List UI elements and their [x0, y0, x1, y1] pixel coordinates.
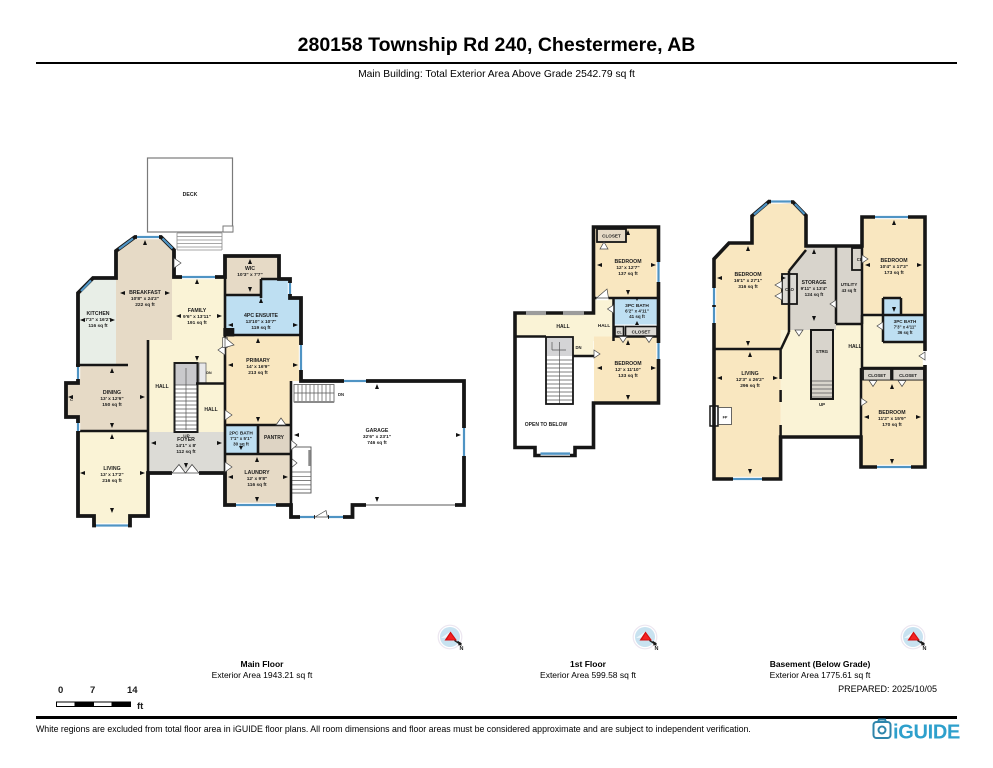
svg-text:6'2" x 4'11": 6'2" x 4'11"	[625, 309, 649, 314]
svg-text:PANTRY: PANTRY	[264, 435, 285, 441]
svg-text:11'2" x 15'9": 11'2" x 15'9"	[878, 416, 906, 422]
svg-text:296 sq ft: 296 sq ft	[740, 383, 760, 389]
svg-text:N: N	[923, 646, 927, 652]
svg-text:9'6" x 13'11": 9'6" x 13'11"	[183, 314, 211, 320]
svg-text:LIVING: LIVING	[103, 466, 120, 472]
svg-text:DN: DN	[338, 392, 344, 397]
svg-text:GARAGE: GARAGE	[366, 428, 389, 434]
svg-text:12' x 9'8": 12' x 9'8"	[247, 476, 268, 482]
svg-text:BEDROOM: BEDROOM	[614, 361, 641, 367]
svg-text:12' x 11'10": 12' x 11'10"	[615, 367, 641, 373]
svg-text:12' x 12'7": 12' x 12'7"	[616, 265, 639, 271]
svg-text:CLOSET: CLOSET	[899, 373, 917, 378]
svg-text:30 sq ft: 30 sq ft	[233, 442, 249, 447]
svg-text:CLOSET: CLOSET	[868, 373, 886, 378]
svg-text:HALL: HALL	[848, 344, 861, 350]
svg-text:FAMILY: FAMILY	[188, 308, 207, 314]
svg-text:124 sq ft: 124 sq ft	[805, 292, 824, 297]
svg-text:BEDROOM: BEDROOM	[878, 410, 905, 416]
svg-text:14: 14	[127, 685, 138, 696]
svg-text:14' x 16'9": 14' x 16'9"	[246, 364, 269, 370]
svg-text:iGUIDE: iGUIDE	[893, 722, 960, 744]
svg-text:316 sq ft: 316 sq ft	[738, 284, 758, 290]
svg-text:112 sq ft: 112 sq ft	[176, 449, 196, 455]
svg-text:BEDROOM: BEDROOM	[880, 258, 907, 264]
svg-text:43 sq ft: 43 sq ft	[842, 288, 857, 293]
svg-text:32'6" x 23'1": 32'6" x 23'1"	[363, 434, 391, 440]
svg-text:DN: DN	[206, 371, 212, 375]
svg-text:216 sq ft: 216 sq ft	[102, 478, 122, 484]
svg-text:HALL: HALL	[598, 323, 610, 328]
svg-text:N: N	[460, 646, 464, 652]
svg-text:LIVING: LIVING	[741, 371, 758, 377]
svg-text:116 sq ft: 116 sq ft	[88, 323, 108, 329]
svg-text:DINING: DINING	[103, 390, 121, 396]
svg-text:170 sq ft: 170 sq ft	[882, 422, 902, 428]
svg-text:HALL: HALL	[155, 384, 168, 390]
svg-text:16'1" x 27'1": 16'1" x 27'1"	[734, 278, 762, 284]
svg-text:213 sq ft: 213 sq ft	[248, 370, 268, 376]
svg-text:KITCHEN: KITCHEN	[86, 311, 109, 317]
svg-text:12'3" x 26'2": 12'3" x 26'2"	[736, 377, 764, 383]
svg-text:CLOSET: CLOSET	[602, 234, 621, 239]
svg-text:HALL: HALL	[204, 407, 217, 413]
svg-text:BEDROOM: BEDROOM	[734, 272, 761, 278]
svg-text:7'3" x 4'11": 7'3" x 4'11"	[894, 325, 917, 330]
svg-text:7: 7	[90, 685, 95, 696]
svg-text:7'1" x 5'1": 7'1" x 5'1"	[230, 436, 251, 441]
svg-text:BEDROOM: BEDROOM	[614, 259, 641, 265]
svg-text:41 sq ft: 41 sq ft	[629, 314, 645, 319]
svg-text:116 sq ft: 116 sq ft	[247, 482, 267, 488]
svg-text:BREAKFAST: BREAKFAST	[129, 290, 162, 296]
svg-text:746 sq ft: 746 sq ft	[367, 440, 387, 446]
svg-text:10'8" x 24'2": 10'8" x 24'2"	[131, 296, 159, 302]
svg-text:150 sq ft: 150 sq ft	[102, 402, 122, 408]
svg-text:7'3" x 16'2": 7'3" x 16'2"	[85, 317, 111, 323]
svg-text:133 sq ft: 133 sq ft	[618, 373, 638, 379]
svg-text:10'3" x 7'7": 10'3" x 7'7"	[237, 272, 263, 278]
svg-text:137 sq ft: 137 sq ft	[618, 271, 638, 277]
svg-text:36 sq ft: 36 sq ft	[897, 330, 913, 335]
svg-text:4PC ENSUITE: 4PC ENSUITE	[244, 313, 279, 319]
svg-text:UP: UP	[183, 434, 189, 439]
svg-text:WIC: WIC	[245, 266, 255, 272]
svg-text:CLOSET: CLOSET	[632, 330, 651, 335]
svg-text:DECK: DECK	[183, 192, 198, 198]
svg-text:3PC BATH: 3PC BATH	[894, 319, 917, 324]
svg-text:N: N	[655, 646, 659, 652]
svg-text:HALL: HALL	[556, 324, 569, 330]
svg-text:LAUNDRY: LAUNDRY	[244, 470, 270, 476]
svg-text:9'11" x 13'4": 9'11" x 13'4"	[801, 286, 828, 291]
svg-text:PRIMARY: PRIMARY	[246, 358, 270, 364]
svg-text:CL: CL	[617, 331, 623, 335]
svg-text:ft: ft	[137, 701, 144, 712]
svg-text:191 sq ft: 191 sq ft	[187, 320, 207, 326]
svg-text:FP: FP	[723, 416, 728, 420]
svg-text:0: 0	[58, 685, 63, 696]
svg-text:DN: DN	[575, 345, 581, 350]
svg-text:13' x 12'6": 13' x 12'6"	[100, 396, 123, 402]
svg-text:UP: UP	[819, 402, 825, 407]
svg-text:222 sq ft: 222 sq ft	[135, 302, 155, 308]
svg-text:UTILITY: UTILITY	[841, 282, 858, 287]
svg-text:173 sq ft: 173 sq ft	[884, 270, 904, 276]
svg-text:14'1" x 8': 14'1" x 8'	[176, 443, 197, 449]
svg-text:13'10" x 10'7": 13'10" x 10'7"	[246, 319, 277, 325]
svg-text:10'4" x 17'3": 10'4" x 17'3"	[880, 264, 908, 270]
svg-text:13' x 17'2": 13' x 17'2"	[100, 472, 123, 478]
svg-text:STRG: STRG	[816, 349, 829, 354]
svg-text:OPEN TO BELOW: OPEN TO BELOW	[525, 422, 568, 428]
svg-text:119 sq ft: 119 sq ft	[251, 325, 271, 331]
